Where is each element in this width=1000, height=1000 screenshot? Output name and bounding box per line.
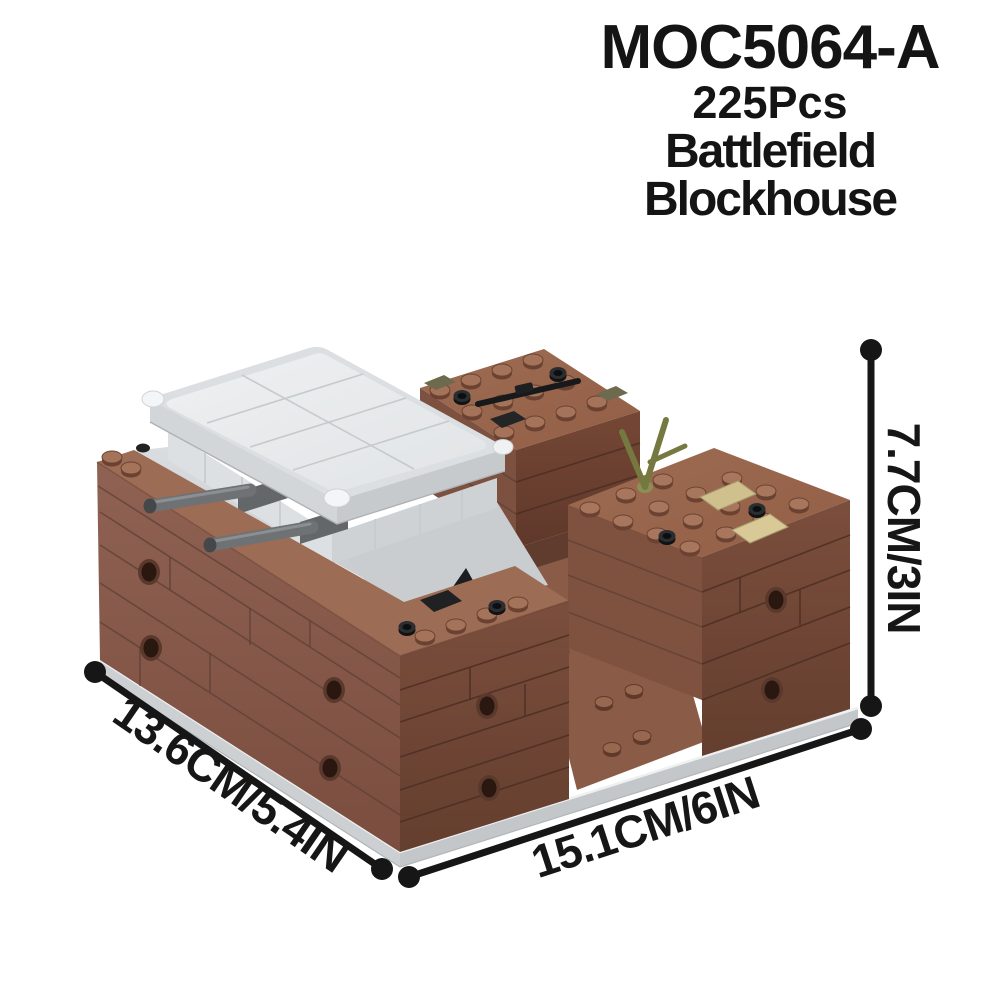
black-piece xyxy=(136,444,150,453)
dimension-height: 7.7CM/3IN xyxy=(860,339,930,717)
dimension-label-height: 7.7CM/3IN xyxy=(878,423,930,634)
product-image: MOC5064-A 225Pcs Battlefield Blockhouse xyxy=(0,0,1000,1000)
barrel-muzzle xyxy=(204,538,217,553)
roof-corner-nub xyxy=(493,440,513,455)
barrel-muzzle xyxy=(144,499,157,514)
roof-corner-nub xyxy=(324,489,350,507)
model-render: 13.6CM/5.4IN 15.1CM/6IN 7.7CM/3IN xyxy=(0,0,1000,1000)
roof-corner-nub xyxy=(142,391,164,407)
